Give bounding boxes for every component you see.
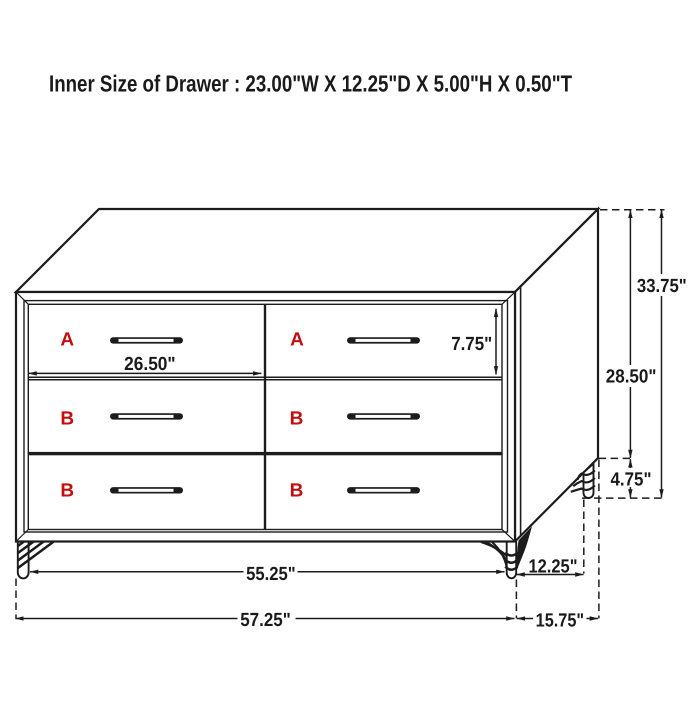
svg-text:57.25": 57.25" xyxy=(240,610,291,631)
svg-text:55.25": 55.25" xyxy=(246,564,296,585)
svg-text:33.75": 33.75" xyxy=(637,276,687,297)
svg-text:7.75": 7.75" xyxy=(451,334,492,355)
svg-text:4.75": 4.75" xyxy=(611,469,652,490)
svg-text:B: B xyxy=(290,481,304,502)
svg-text:A: A xyxy=(60,329,74,350)
svg-text:B: B xyxy=(290,409,304,430)
svg-text:26.50": 26.50" xyxy=(124,354,176,375)
svg-text:12.25": 12.25" xyxy=(529,556,578,577)
svg-text:B: B xyxy=(60,409,74,430)
svg-text:28.50": 28.50" xyxy=(606,367,657,388)
svg-text:Inner Size of Drawer : 23.00"W: Inner Size of Drawer : 23.00"W X 12.25"D… xyxy=(49,71,572,97)
svg-text:A: A xyxy=(290,329,304,350)
svg-text:B: B xyxy=(60,481,74,502)
svg-text:15.75": 15.75" xyxy=(536,610,585,631)
